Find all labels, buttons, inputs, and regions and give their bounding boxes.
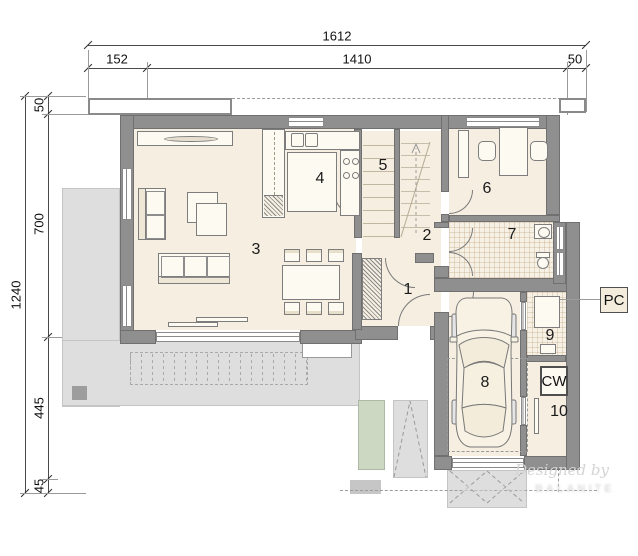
room-number-1: 1	[404, 281, 413, 299]
car	[450, 298, 518, 447]
room-number-2: 2	[423, 227, 432, 245]
room-number-6: 6	[483, 180, 492, 198]
car-mirror	[450, 337, 457, 342]
room-number-7: 7	[508, 226, 517, 244]
room-number-5: 5	[379, 157, 388, 175]
room-number-3: 3	[252, 241, 261, 259]
watermark-caps-line: MARONE BALANITE	[462, 483, 615, 495]
car-rear-window	[462, 404, 506, 437]
car-mirror	[511, 337, 518, 342]
floor-plan-canvas: 1612 152 1410 50 1240 50 700 445 45	[0, 0, 638, 556]
staircase-marks	[401, 142, 430, 237]
room-number-9: 9	[546, 327, 555, 345]
room-number-4: 4	[316, 170, 325, 188]
watermark-script-line: Designed by	[515, 461, 609, 479]
room-number-8: 8	[481, 374, 490, 392]
room-number-10: 10	[550, 403, 568, 421]
porch-steps-mark	[394, 401, 426, 477]
